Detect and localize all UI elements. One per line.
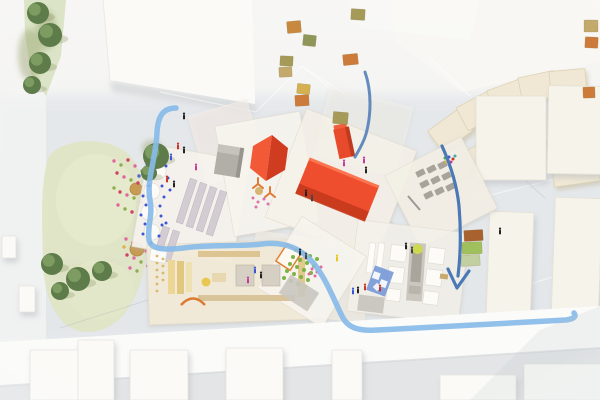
model-photo-canvas bbox=[0, 0, 600, 400]
vignette bbox=[0, 0, 600, 400]
model-photo bbox=[0, 0, 600, 400]
